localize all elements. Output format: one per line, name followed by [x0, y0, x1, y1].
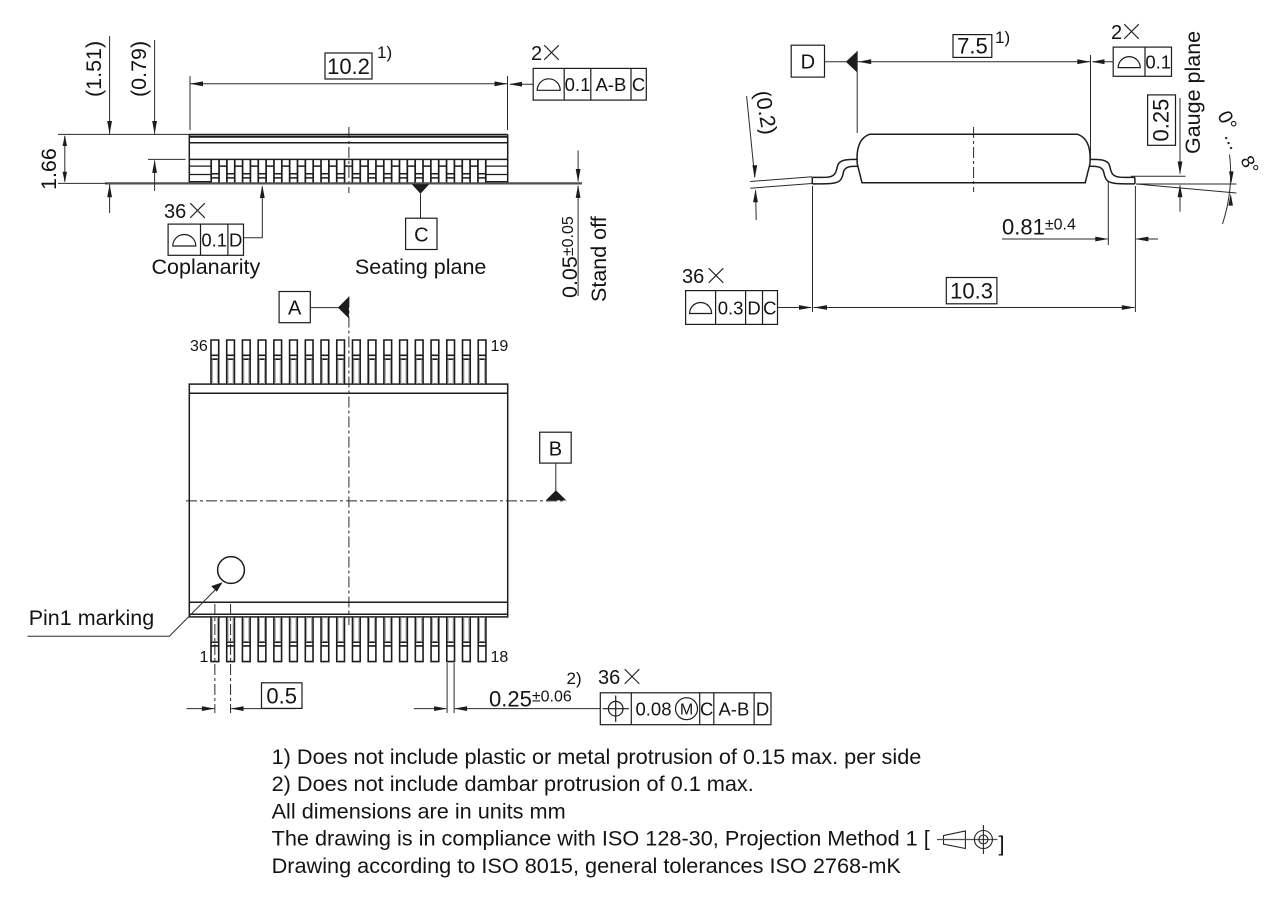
svg-text:A: A	[288, 298, 302, 320]
svg-text:M: M	[680, 702, 693, 719]
svg-text:C: C	[763, 298, 776, 319]
svg-text:1): 1)	[995, 28, 1010, 47]
svg-text:0.1: 0.1	[1145, 52, 1171, 73]
svg-text:(1.51): (1.51)	[82, 41, 106, 97]
svg-text:0.1: 0.1	[201, 230, 227, 251]
svg-text:D: D	[801, 52, 815, 74]
svg-text:A-B: A-B	[595, 74, 626, 95]
svg-text:10.3: 10.3	[950, 279, 993, 304]
svg-text:1): 1)	[377, 43, 392, 62]
svg-text:2: 2	[531, 43, 542, 65]
svg-text:36: 36	[190, 338, 208, 355]
svg-text:Coplanarity: Coplanarity	[152, 255, 261, 279]
svg-text:0.1: 0.1	[565, 74, 591, 95]
svg-text:0.25: 0.25	[1149, 99, 1174, 142]
svg-text:The drawing is in compliance w: The drawing is in compliance with ISO 12…	[272, 826, 930, 851]
svg-text:18: 18	[491, 649, 509, 666]
svg-text:(0.79): (0.79)	[127, 41, 151, 97]
svg-text:36: 36	[164, 201, 186, 223]
svg-text:B: B	[549, 439, 562, 461]
svg-text:C: C	[700, 699, 713, 720]
svg-text:2: 2	[1111, 22, 1122, 44]
svg-text:D: D	[756, 699, 769, 720]
svg-text:19: 19	[491, 338, 509, 355]
svg-text:Seating plane: Seating plane	[355, 255, 487, 279]
svg-text:36: 36	[682, 266, 704, 288]
svg-text:36: 36	[598, 667, 620, 689]
svg-text:D: D	[229, 230, 242, 251]
svg-text:]: ]	[999, 831, 1005, 856]
svg-text:0.5: 0.5	[266, 684, 297, 709]
svg-text:1: 1	[200, 649, 209, 666]
svg-text:A-B: A-B	[718, 699, 749, 720]
svg-text:Stand off: Stand off	[587, 216, 611, 302]
svg-text:C: C	[414, 225, 428, 247]
svg-text:1) Does not include plastic or: 1) Does not include plastic or metal pro…	[272, 744, 922, 769]
svg-text:1.66: 1.66	[37, 148, 61, 190]
svg-text:0.3: 0.3	[718, 298, 744, 319]
svg-text:2): 2)	[567, 669, 582, 688]
svg-text:7.5: 7.5	[957, 34, 988, 59]
svg-text:Drawing according to ISO 8015,: Drawing according to ISO 8015, general t…	[272, 853, 902, 878]
svg-text:0.08: 0.08	[636, 699, 672, 720]
svg-text:2) Does not include dambar pro: 2) Does not include dambar protrusion of…	[272, 771, 754, 796]
svg-text:D: D	[747, 298, 760, 319]
svg-text:Gauge plane: Gauge plane	[1181, 31, 1205, 154]
svg-text:Pin1 marking: Pin1 marking	[29, 606, 154, 630]
svg-text:10.2: 10.2	[327, 54, 370, 79]
svg-text:C: C	[632, 74, 645, 95]
svg-text:All dimensions are in units mm: All dimensions are in units mm	[272, 798, 566, 823]
